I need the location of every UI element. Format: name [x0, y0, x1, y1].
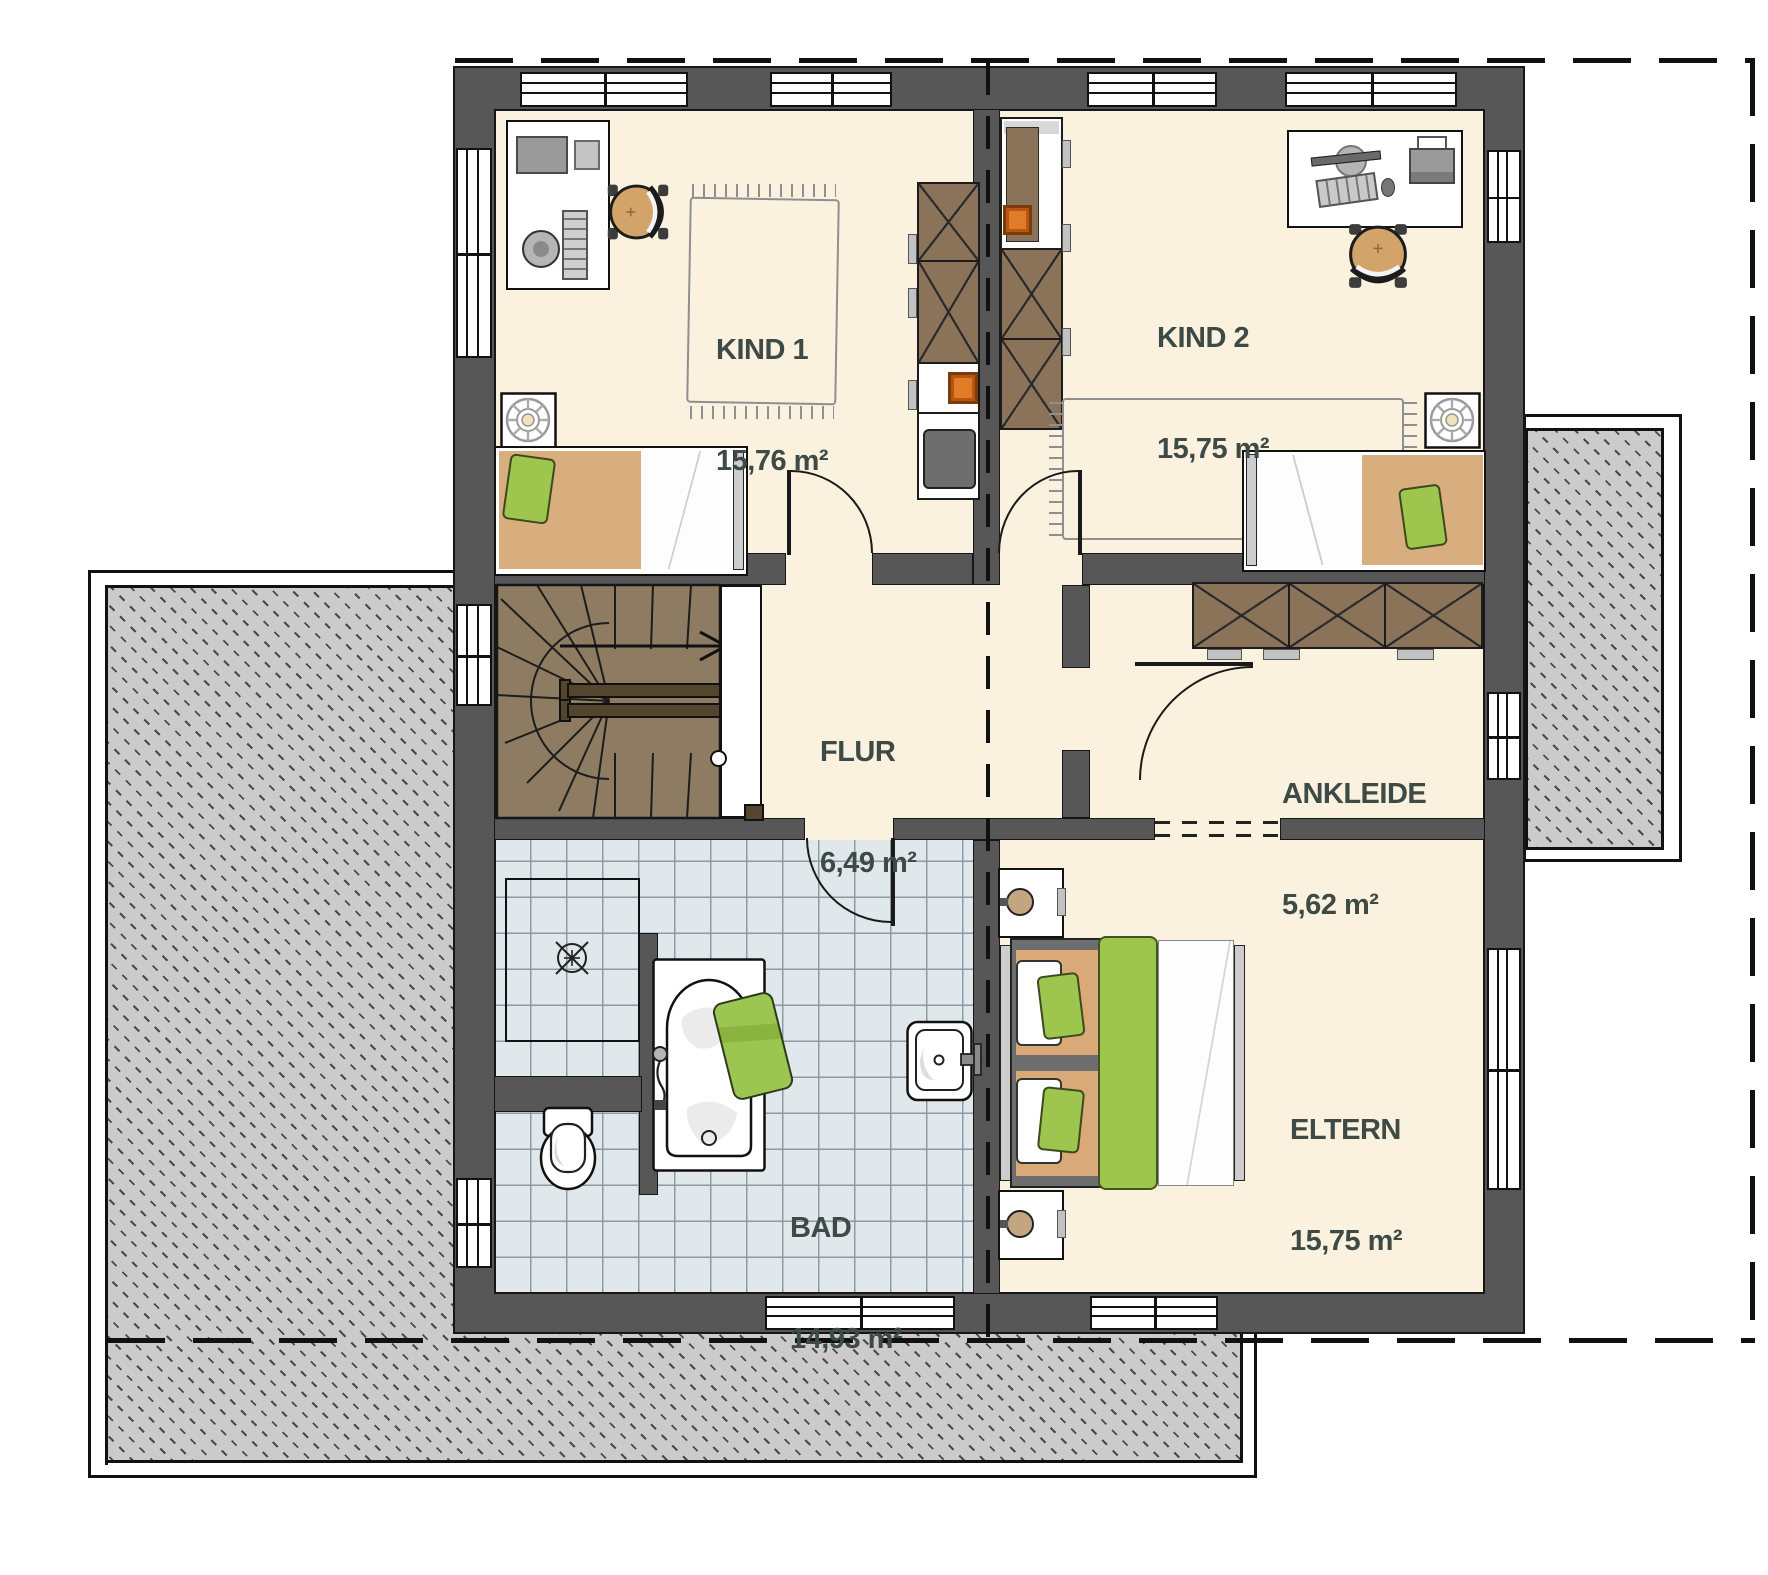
terrace-border	[105, 1460, 1243, 1463]
room-label-flur: FLUR 6,49 m²	[820, 660, 916, 956]
lamp-stem	[1000, 1220, 1008, 1228]
wardrobe-handle	[908, 380, 917, 410]
window-eltern-bottom	[1090, 1296, 1218, 1330]
bed-cushion	[1037, 1086, 1085, 1154]
nightstand-handle	[1057, 1210, 1066, 1238]
door-leaf-ankleide	[1135, 662, 1253, 666]
open-passage-ankleide-eltern	[1155, 821, 1280, 824]
printer-icon	[1409, 148, 1455, 184]
window-bad-left	[456, 1178, 492, 1268]
shower-drain-icon	[552, 938, 592, 978]
wardrobe-kind1-cell	[917, 182, 980, 262]
wall-flur-bad-left	[494, 818, 805, 840]
wardrobe-handle	[1207, 649, 1242, 660]
window-kind2-top-1	[1087, 72, 1217, 107]
room-area: 5,62 m²	[1282, 887, 1426, 924]
wardrobe-handle	[908, 288, 917, 318]
terrace-border	[105, 585, 108, 1465]
terrace-offset-left	[88, 570, 91, 1478]
window-kind2-top-2	[1285, 72, 1457, 107]
lamp-stem	[1000, 898, 1008, 906]
nightstand-eltern	[998, 1190, 1064, 1260]
room-label-ankleide: ANKLEIDE 5,62 m²	[1282, 702, 1426, 998]
roof-outline-top	[455, 58, 1755, 63]
room-name: BAD	[790, 1210, 902, 1247]
office-chair-kind1	[602, 176, 674, 248]
ventilation-unit-icon	[500, 392, 557, 449]
stair-post	[744, 804, 764, 821]
room-name: KIND 2	[1157, 320, 1269, 357]
monitor-icon	[516, 136, 568, 174]
keyboard-icon	[1315, 172, 1378, 208]
wall-kind1-stub	[872, 553, 973, 585]
bench-icon	[923, 429, 976, 489]
washbasin-icon	[906, 1016, 984, 1106]
rug-fringe	[692, 184, 836, 197]
window-stair-left	[456, 604, 492, 706]
toilet-icon	[538, 1106, 598, 1192]
dresser-kind2	[1000, 117, 1063, 250]
ventilation-unit-icon	[1424, 392, 1481, 449]
room-area: 15,75 m²	[1290, 1223, 1402, 1260]
wall-ankleide-stub-bottom	[1062, 750, 1090, 818]
terrace-bottom	[107, 1332, 1243, 1463]
balcony	[1525, 428, 1664, 850]
wardrobe-handle	[1062, 224, 1071, 252]
bed-eltern	[1000, 938, 1244, 1188]
room-name: FLUR	[820, 734, 916, 771]
bed-duvet-green	[1098, 936, 1158, 1190]
floor-plan: KIND 1 15,76 m² KIND 2 15,75 m² FLUR 6,4…	[0, 0, 1768, 1575]
desk-kind1	[506, 120, 610, 290]
window-kind1-top-2	[770, 72, 892, 107]
wardrobe-ankleide-cell	[1288, 582, 1387, 649]
window-kind2-right	[1487, 150, 1521, 243]
room-area: 15,75 m²	[1157, 431, 1269, 468]
bed-pillow	[502, 453, 557, 525]
room-label-bad: BAD 14,93 m²	[790, 1136, 902, 1432]
wardrobe-ankleide-cell	[1384, 582, 1483, 649]
storage-box-icon	[948, 372, 978, 404]
lamp-icon	[1006, 888, 1034, 916]
bed-kind1	[494, 446, 748, 576]
terrace-offset-bottom	[88, 1475, 1257, 1478]
bed-duvet-white	[1158, 940, 1234, 1186]
terrace-offset-top	[88, 570, 457, 573]
room-area: 14,93 m²	[790, 1321, 902, 1358]
room-area: 6,49 m²	[820, 845, 916, 882]
window-kind1-top-1	[520, 72, 688, 107]
room-label-kind1: KIND 1 15,76 m²	[716, 258, 828, 554]
nightstand-eltern	[998, 868, 1064, 938]
room-name: ANKLEIDE	[1282, 776, 1426, 813]
room-name: ELTERN	[1290, 1112, 1402, 1149]
wardrobe-handle	[1263, 649, 1300, 660]
office-chair-kind2	[1340, 218, 1416, 294]
room-label-eltern: ELTERN 15,75 m²	[1290, 1038, 1402, 1334]
wardrobe-kind1-cell	[917, 260, 980, 364]
roof-outline-bottom	[107, 1338, 1755, 1343]
room-label-kind2: KIND 2 15,75 m²	[1157, 246, 1269, 542]
wall-flur-bad-right	[893, 818, 1155, 840]
window-ankleide-right	[1487, 692, 1521, 780]
wardrobe-handle	[1397, 649, 1434, 660]
wardrobe-kind1-bench	[917, 412, 980, 500]
roof-outline-right	[1750, 58, 1755, 1346]
wardrobe-kind2-cell	[1000, 248, 1063, 340]
bed-pillow	[1398, 483, 1448, 550]
terrace-border	[105, 585, 455, 588]
room-area: 15,76 m²	[716, 443, 828, 480]
wall-ankleide-stub-top	[1062, 585, 1090, 668]
terrace-border	[1240, 1332, 1243, 1463]
lamp-icon	[1006, 1210, 1034, 1238]
mouse-icon	[1381, 178, 1395, 197]
section-line	[986, 62, 990, 1342]
door-leaf-kind2	[1078, 470, 1082, 555]
bed-cushion	[1036, 972, 1085, 1041]
open-passage-ankleide-eltern	[1155, 834, 1280, 837]
wardrobe-kind1-shelf	[917, 362, 980, 414]
stair-newel-circle	[710, 750, 727, 767]
speaker-icon	[522, 230, 560, 268]
bed-footboard	[1234, 945, 1245, 1181]
bed-kind2	[1242, 450, 1486, 572]
wardrobe-handle	[908, 234, 917, 264]
nightstand-handle	[1057, 888, 1066, 916]
desk-kind2	[1287, 130, 1463, 228]
wardrobe-handle	[1062, 140, 1071, 168]
wardrobe-handle	[1062, 328, 1071, 356]
pc-tower-icon	[574, 140, 600, 170]
window-kind1-left	[456, 148, 492, 358]
wardrobe-ankleide-cell	[1192, 582, 1291, 649]
bed-duvet	[1257, 455, 1362, 565]
terrace-offset-right	[1254, 1332, 1257, 1478]
window-eltern-right	[1487, 948, 1521, 1190]
room-name: KIND 1	[716, 332, 828, 369]
storage-box-icon	[1003, 205, 1032, 235]
keyboard-icon	[562, 210, 588, 280]
stair-railing-wall	[720, 585, 762, 818]
